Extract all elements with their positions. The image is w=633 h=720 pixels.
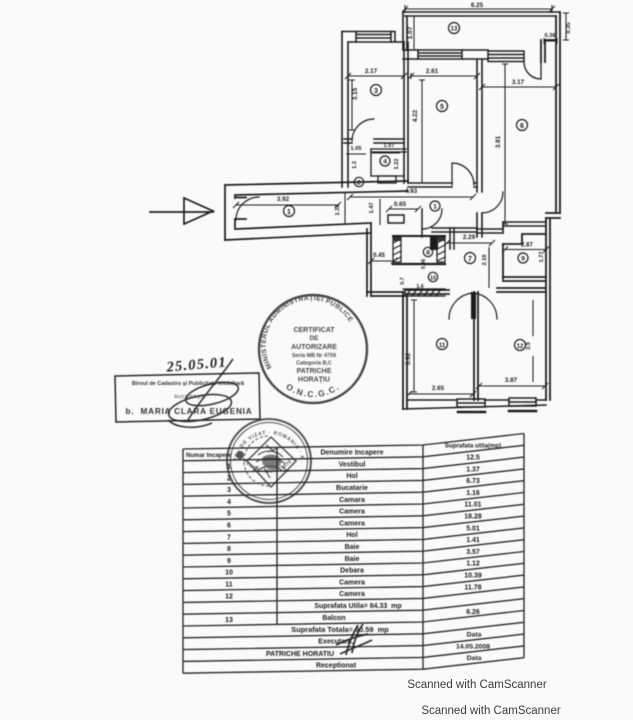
svg-text:2: 2 bbox=[357, 180, 361, 187]
svg-text:10: 10 bbox=[430, 275, 436, 281]
svg-text:HORAŢIU: HORAŢIU bbox=[298, 377, 330, 384]
svg-text:Camera: Camera bbox=[339, 509, 365, 516]
svg-text:1.22: 1.22 bbox=[394, 159, 400, 170]
svg-text:3.9: 3.9 bbox=[526, 342, 532, 350]
svg-text:1.16: 1.16 bbox=[466, 490, 480, 497]
svg-text:CERTIFICAT: CERTIFICAT bbox=[293, 327, 335, 334]
svg-text:4.22: 4.22 bbox=[412, 109, 419, 122]
svg-text:3: 3 bbox=[374, 88, 378, 95]
svg-text:12: 12 bbox=[225, 593, 233, 600]
svg-text:3.15: 3.15 bbox=[352, 87, 359, 100]
svg-text:6.26: 6.26 bbox=[466, 609, 480, 616]
svg-text:25.05.01: 25.05.01 bbox=[165, 354, 228, 375]
svg-text:PATRICHE HORATIU: PATRICHE HORATIU bbox=[266, 651, 334, 658]
svg-text:2.17: 2.17 bbox=[365, 68, 378, 75]
svg-text:1: 1 bbox=[227, 464, 231, 471]
svg-text:7: 7 bbox=[468, 256, 472, 263]
svg-text:Categoria B,C: Categoria B,C bbox=[296, 361, 332, 367]
svg-text:Denumire Incapere: Denumire Incapere bbox=[320, 450, 383, 457]
svg-text:6: 6 bbox=[520, 123, 524, 130]
svg-text:14.05.2008: 14.05.2008 bbox=[456, 643, 490, 650]
svg-text:2.29: 2.29 bbox=[463, 234, 476, 241]
svg-text:2.87: 2.87 bbox=[521, 243, 533, 249]
svg-text:13: 13 bbox=[451, 27, 458, 33]
svg-text:Data: Data bbox=[467, 631, 482, 638]
svg-text:9: 9 bbox=[227, 558, 231, 565]
svg-text:2: 2 bbox=[227, 475, 231, 482]
svg-text:6.73: 6.73 bbox=[466, 478, 480, 485]
svg-text:Camera: Camera bbox=[339, 520, 365, 527]
svg-text:Vestibul: Vestibul bbox=[339, 461, 366, 468]
svg-text:6.25: 6.25 bbox=[471, 2, 484, 9]
svg-text:11.78: 11.78 bbox=[464, 584, 481, 591]
svg-text:4: 4 bbox=[227, 499, 231, 506]
svg-text:b. MARIA CLARA EUGENIA: b. MARIA CLARA EUGENIA bbox=[126, 407, 253, 416]
svg-text:0.36: 0.36 bbox=[545, 33, 556, 39]
svg-text:Hol: Hol bbox=[346, 532, 357, 539]
svg-text:0.65: 0.65 bbox=[394, 201, 407, 208]
svg-text:1.07: 1.07 bbox=[407, 26, 414, 39]
svg-text:2.65: 2.65 bbox=[432, 385, 445, 392]
svg-text:3.92: 3.92 bbox=[277, 196, 290, 203]
svg-text:1.47: 1.47 bbox=[369, 203, 375, 214]
svg-text:10.39: 10.39 bbox=[464, 573, 482, 580]
svg-text:5: 5 bbox=[440, 104, 444, 111]
svg-text:Seria MB Nr 4759: Seria MB Nr 4759 bbox=[292, 353, 336, 359]
svg-text:PATRICHE: PATRICHE bbox=[297, 368, 332, 375]
svg-text:1.77: 1.77 bbox=[539, 252, 545, 263]
svg-text:12.5: 12.5 bbox=[466, 455, 480, 462]
svg-text:8: 8 bbox=[426, 250, 430, 257]
svg-text:1.12: 1.12 bbox=[466, 561, 480, 568]
svg-text:0.45: 0.45 bbox=[373, 253, 385, 259]
svg-text:4.93: 4.93 bbox=[405, 188, 418, 195]
svg-text:Receptionat: Receptionat bbox=[316, 662, 357, 669]
svg-text:9: 9 bbox=[521, 256, 525, 263]
svg-text:1.37: 1.37 bbox=[466, 466, 480, 473]
svg-text:18.28: 18.28 bbox=[464, 514, 482, 521]
svg-text:1.32: 1.32 bbox=[335, 205, 341, 216]
svg-text:3.87: 3.87 bbox=[505, 377, 518, 384]
svg-text:7: 7 bbox=[227, 534, 231, 541]
svg-text:3.81: 3.81 bbox=[495, 135, 502, 148]
svg-text:Camera: Camera bbox=[339, 591, 365, 598]
svg-text:8: 8 bbox=[227, 546, 231, 553]
svg-text:Balcon: Balcon bbox=[322, 615, 345, 622]
svg-text:11: 11 bbox=[439, 343, 446, 349]
svg-text:0.96: 0.96 bbox=[421, 259, 427, 269]
svg-text:Camara: Camara bbox=[339, 497, 365, 504]
svg-text:1: 1 bbox=[433, 204, 437, 211]
svg-text:1.07: 1.07 bbox=[384, 143, 395, 149]
svg-text:1.6: 1.6 bbox=[416, 284, 423, 290]
svg-text:O.N.C.G.C.: O.N.C.G.C. bbox=[284, 381, 341, 399]
svg-text:1.3: 1.3 bbox=[352, 161, 358, 169]
svg-text:6: 6 bbox=[227, 523, 231, 530]
svg-text:4: 4 bbox=[383, 159, 387, 166]
svg-text:11.01: 11.01 bbox=[464, 502, 481, 509]
svg-text:Suprafata utila(mp): Suprafata utila(mp) bbox=[445, 442, 501, 449]
svg-text:2.19: 2.19 bbox=[482, 255, 488, 266]
svg-text:11: 11 bbox=[225, 582, 233, 589]
svg-text:3: 3 bbox=[227, 487, 231, 494]
svg-text:Baie: Baie bbox=[345, 556, 360, 563]
svg-text:3.92: 3.92 bbox=[405, 352, 412, 365]
svg-text:Camera: Camera bbox=[339, 579, 365, 586]
svg-text:Hol: Hol bbox=[346, 473, 357, 480]
svg-text:Suprafata Totala= 90.59 mp: Suprafata Totala= 90.59 mp bbox=[291, 625, 389, 634]
svg-text:13: 13 bbox=[225, 617, 233, 624]
svg-text:Debara: Debara bbox=[340, 568, 364, 575]
svg-text:Numar Incapere: Numar Incapere bbox=[186, 453, 232, 459]
svg-text:1.41: 1.41 bbox=[466, 537, 480, 544]
svg-text:Data: Data bbox=[467, 655, 482, 662]
svg-text:5.01: 5.01 bbox=[466, 525, 480, 532]
svg-text:0.7: 0.7 bbox=[400, 277, 406, 284]
svg-text:2.61: 2.61 bbox=[426, 68, 439, 75]
svg-text:0.35: 0.35 bbox=[566, 23, 572, 34]
svg-text:1.05: 1.05 bbox=[351, 146, 362, 152]
svg-text:3.57: 3.57 bbox=[466, 549, 480, 556]
svg-text:5: 5 bbox=[227, 511, 231, 518]
svg-text:1: 1 bbox=[287, 209, 291, 216]
svg-text:Suprafata Utila= 84.33 mp: Suprafata Utila= 84.33 mp bbox=[314, 603, 401, 610]
svg-text:10: 10 bbox=[225, 570, 233, 577]
svg-text:Bucatarie: Bucatarie bbox=[336, 485, 368, 492]
svg-text:Scanned with CamScanner: Scanned with CamScanner bbox=[407, 679, 547, 691]
svg-text:DE: DE bbox=[309, 335, 319, 342]
svg-text:AUTORIZARE: AUTORIZARE bbox=[291, 344, 337, 351]
svg-text:12: 12 bbox=[517, 344, 524, 350]
svg-text:3.17: 3.17 bbox=[512, 79, 525, 86]
svg-text:Scanned with CamScanner: Scanned with CamScanner bbox=[421, 705, 561, 717]
svg-text:Baie: Baie bbox=[345, 544, 360, 551]
